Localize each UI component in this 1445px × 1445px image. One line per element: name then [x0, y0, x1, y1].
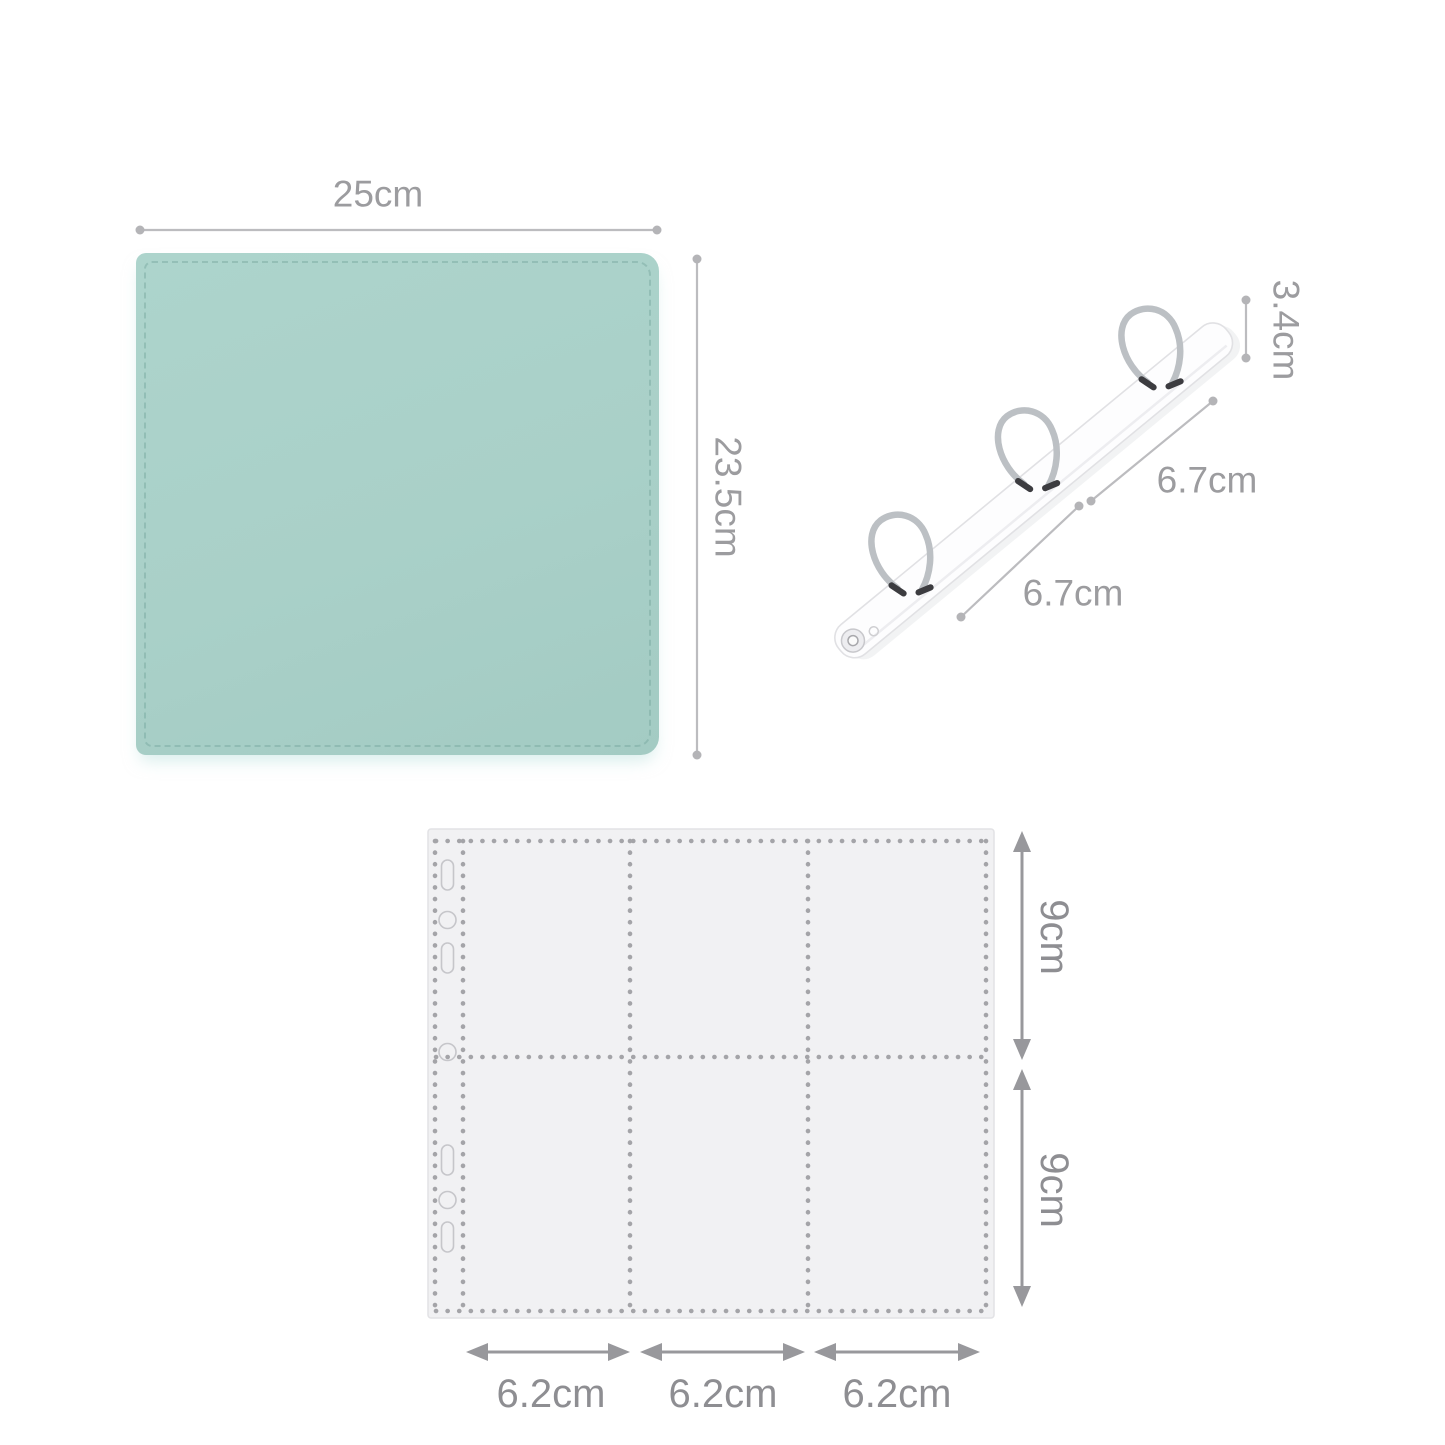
ring-gap-lower-label: 6.7cm [1023, 575, 1124, 612]
pocket-col-2-label: 6.2cm [669, 1374, 778, 1414]
binder-ring-2 [998, 410, 1057, 489]
ring-height-label: 3.4cm [1268, 280, 1305, 381]
pocket-col-arrow-3 [814, 1343, 980, 1361]
pocket-col-arrow-2 [640, 1343, 805, 1361]
pocket-page [428, 829, 994, 1318]
pocket-col-arrow-1 [466, 1343, 630, 1361]
pocket-row-arrow-bottom [1013, 1069, 1031, 1307]
binder-ring-1 [871, 515, 930, 594]
pocket-stitch-lines [435, 841, 986, 1311]
binding-holes [439, 860, 456, 1252]
pocket-col-3-label: 6.2cm [843, 1374, 952, 1414]
pocket-col-1-label: 6.2cm [497, 1374, 606, 1414]
ring-gap-upper-label: 6.7cm [1157, 462, 1258, 499]
binder-cover [136, 253, 659, 755]
pocket-page-sheet [428, 829, 994, 1318]
binder-height-dimension-line [693, 255, 702, 760]
binder-height-label: 23.5cm [710, 436, 747, 557]
pocket-row-top-label: 9cm [1034, 899, 1074, 975]
binder-ring-3 [1121, 309, 1180, 388]
pocket-row-arrow-top [1013, 831, 1031, 1060]
product-diagram: 25cm 23.5cm 3.4cm 6.7cm 6.7cm 9cm 9cm 6.… [0, 0, 1445, 1445]
binder-width-dimension-line [136, 226, 662, 235]
binder-width-label: 25cm [333, 176, 423, 213]
ring-height-dimension-line [1242, 296, 1251, 363]
pocket-row-bottom-label: 9cm [1034, 1152, 1074, 1228]
ring-strip-endcap [837, 615, 881, 657]
